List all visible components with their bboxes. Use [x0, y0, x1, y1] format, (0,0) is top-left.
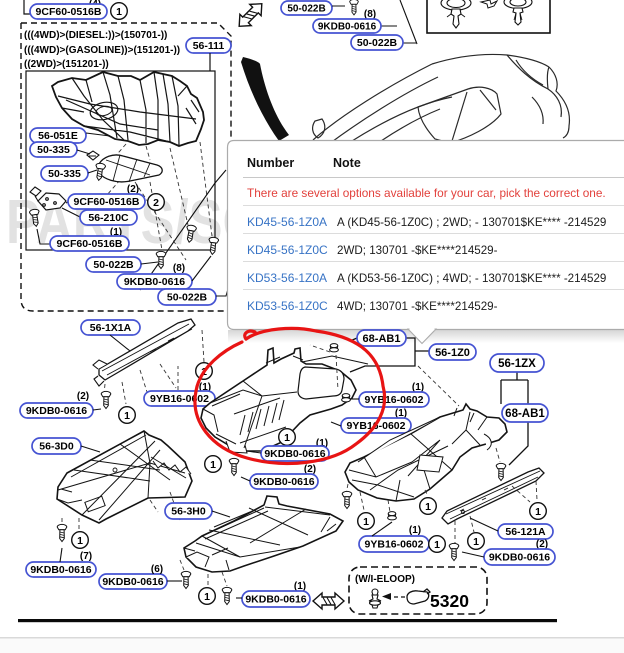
- svg-text:(7): (7): [80, 551, 92, 562]
- svg-text:Note: Note: [333, 156, 361, 170]
- svg-text:56-051E: 56-051E: [38, 130, 78, 142]
- svg-text:56-1X1A: 56-1X1A: [90, 322, 132, 334]
- svg-text:50-022B: 50-022B: [287, 4, 325, 15]
- svg-text:(1): (1): [409, 525, 421, 536]
- svg-text:((2WD)>(151201-)): ((2WD)>(151201-)): [24, 59, 109, 70]
- svg-text:9CF60-0516B: 9CF60-0516B: [74, 196, 140, 208]
- svg-text:A (KD45-56-1Z0C) ; 2WD; - 1307: A (KD45-56-1Z0C) ; 2WD; - 130701$KE**** …: [337, 216, 606, 229]
- svg-text:2WD; 130701 -$KE****214529-: 2WD; 130701 -$KE****214529-: [337, 244, 498, 257]
- svg-text:1: 1: [284, 432, 290, 444]
- svg-text:1: 1: [363, 516, 369, 528]
- svg-text:9KDB0-0616: 9KDB0-0616: [264, 448, 325, 460]
- svg-text:A (KD53-56-1Z0C) ; 4WD; - 1307: A (KD53-56-1Z0C) ; 4WD; - 130701$KE**** …: [337, 272, 606, 285]
- svg-text:1: 1: [204, 591, 210, 603]
- svg-text:9KDB0-0616: 9KDB0-0616: [124, 276, 185, 288]
- svg-text:1: 1: [77, 535, 83, 547]
- svg-text:56-210C: 56-210C: [88, 212, 129, 224]
- svg-text:9KDB0-0616: 9KDB0-0616: [102, 576, 163, 588]
- svg-text:1: 1: [425, 501, 431, 513]
- svg-text:50-022B: 50-022B: [167, 292, 208, 304]
- svg-text:50-335: 50-335: [37, 144, 70, 156]
- svg-text:56-3H0: 56-3H0: [171, 506, 206, 518]
- svg-text:1: 1: [473, 536, 479, 548]
- svg-text:56-111: 56-111: [193, 40, 225, 52]
- svg-text:9YB16-0602: 9YB16-0602: [365, 394, 424, 406]
- svg-text:50-022B: 50-022B: [93, 259, 134, 271]
- svg-text:56-121A: 56-121A: [505, 526, 546, 538]
- svg-text:4WD; 130701 -$KE****214529-: 4WD; 130701 -$KE****214529-: [337, 300, 498, 313]
- svg-text:5320: 5320: [430, 591, 469, 611]
- svg-text:9KDB0-0616: 9KDB0-0616: [253, 476, 314, 488]
- svg-text:56-1ZX: 56-1ZX: [498, 358, 536, 370]
- svg-text:56-3D0: 56-3D0: [39, 441, 74, 453]
- svg-text:50-022B: 50-022B: [357, 37, 398, 49]
- svg-text:50-335: 50-335: [48, 168, 81, 180]
- svg-text:9CF60-0516B: 9CF60-0516B: [36, 6, 102, 18]
- svg-text:(((4WD)>(DIESEL:))>(150701-)): (((4WD)>(DIESEL:))>(150701-)): [24, 30, 167, 41]
- svg-text:Number: Number: [247, 156, 294, 170]
- svg-text:68-AB1: 68-AB1: [363, 333, 401, 345]
- svg-text:9KDB0-0616: 9KDB0-0616: [489, 552, 550, 564]
- svg-text:9KDB0-0616: 9KDB0-0616: [245, 594, 306, 606]
- svg-text:1: 1: [535, 506, 541, 518]
- svg-text:1: 1: [434, 539, 440, 551]
- svg-text:1: 1: [210, 459, 216, 471]
- svg-text:9KDB0-0616: 9KDB0-0616: [26, 405, 87, 417]
- svg-text:(W/I-ELOOP): (W/I-ELOOP): [355, 574, 415, 585]
- svg-text:1: 1: [116, 6, 122, 18]
- svg-text:(6): (6): [151, 564, 163, 575]
- svg-text:68-AB1: 68-AB1: [505, 408, 545, 420]
- svg-text:KD45-56-1Z0A: KD45-56-1Z0A: [247, 215, 327, 229]
- svg-text:56-1Z0: 56-1Z0: [435, 347, 470, 359]
- svg-text:9YB16-0602: 9YB16-0602: [150, 393, 209, 405]
- svg-text:9CF60-0516B: 9CF60-0516B: [57, 238, 123, 250]
- svg-text:KD45-56-1Z0C: KD45-56-1Z0C: [247, 243, 328, 257]
- svg-text:(8): (8): [173, 263, 185, 274]
- svg-text:KD53-56-1Z0A: KD53-56-1Z0A: [247, 271, 327, 285]
- svg-text:(((4WD)>(GASOLINE))>(151201-)): (((4WD)>(GASOLINE))>(151201-)): [24, 45, 180, 56]
- svg-text:(2): (2): [77, 391, 89, 402]
- svg-text:1: 1: [124, 410, 130, 422]
- svg-text:9KDB0-0616: 9KDB0-0616: [30, 564, 91, 576]
- svg-text:There are several options avai: There are several options available for …: [247, 186, 606, 200]
- svg-text:9YB16-0602: 9YB16-0602: [365, 539, 424, 551]
- svg-text:2: 2: [153, 197, 159, 209]
- svg-text:KD53-56-1Z0C: KD53-56-1Z0C: [247, 299, 328, 313]
- svg-text:9KDB0-0616: 9KDB0-0616: [318, 22, 377, 33]
